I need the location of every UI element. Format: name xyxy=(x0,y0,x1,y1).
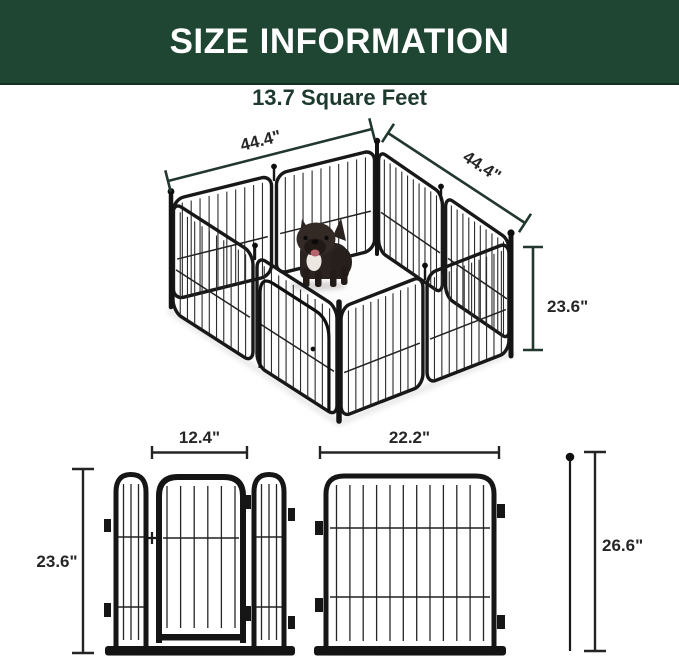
gate-hinge-bottom xyxy=(240,606,251,621)
dim-label-back-right: 44.4" xyxy=(460,147,505,185)
dim-label-back-left: 44.4" xyxy=(238,126,283,154)
dim-label-pen-height: 23.6" xyxy=(547,297,588,316)
dim-back-right: 44.4" xyxy=(382,124,531,232)
regular-panel-figure xyxy=(312,476,508,656)
dim-label-gate-door-width: 12.4" xyxy=(179,428,220,447)
gate-door-bottom-rail xyxy=(156,634,246,641)
dog-illustration xyxy=(297,218,353,287)
dim-gate-door-width: 12.4" xyxy=(152,428,247,459)
dim-label-panel-width: 22.2" xyxy=(389,428,430,447)
gate-knob xyxy=(311,347,316,352)
dim-panel-width: 22.2" xyxy=(320,428,499,459)
dim-label-stake-height: 26.6" xyxy=(602,536,643,555)
dim-label-gate-height: 23.6" xyxy=(36,552,77,571)
gate-door-frame xyxy=(159,477,243,643)
size-diagram: 44.4" 44.4" 23.6" 12.4" xyxy=(0,0,679,656)
dog-nose xyxy=(312,240,319,245)
ground-stake-figure xyxy=(566,453,575,651)
dim-pen-height: 23.6" xyxy=(523,247,588,350)
gate-hinge-top xyxy=(240,495,251,509)
dim-stake-height: 26.6" xyxy=(584,452,643,651)
panel-bottom-bar xyxy=(314,646,506,656)
gate-bottom-bar xyxy=(105,646,295,656)
dim-gate-height: 23.6" xyxy=(36,469,94,653)
gate-panel-figure xyxy=(104,475,296,656)
dog-tongue xyxy=(311,250,320,257)
